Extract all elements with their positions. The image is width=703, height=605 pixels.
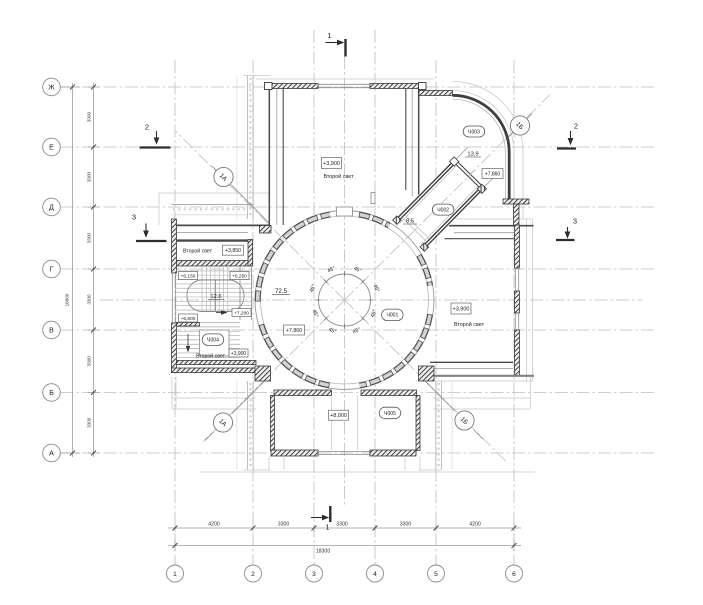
svg-text:+5,250: +5,250 — [232, 273, 247, 279]
svg-text:1: 1 — [327, 31, 331, 40]
svg-text:3300: 3300 — [87, 111, 92, 122]
svg-text:+3,850: +3,850 — [225, 248, 241, 254]
svg-text:Ч005: Ч005 — [384, 411, 396, 417]
svg-text:72.5: 72.5 — [275, 288, 288, 295]
svg-text:13.9: 13.9 — [467, 152, 478, 158]
svg-text:+6,600: +6,600 — [181, 316, 196, 322]
svg-text:Д: Д — [49, 205, 54, 212]
svg-text:Ч001: Ч001 — [386, 313, 398, 319]
svg-text:3300: 3300 — [400, 522, 412, 528]
svg-text:5: 5 — [434, 571, 438, 578]
svg-text:3: 3 — [132, 213, 136, 222]
svg-text:+3,900: +3,900 — [323, 161, 340, 167]
svg-text:Ж: Ж — [48, 85, 55, 92]
svg-text:Второй свет: Второй свет — [323, 173, 354, 180]
svg-text:4200: 4200 — [469, 522, 481, 528]
svg-text:4: 4 — [373, 571, 377, 578]
svg-text:3300: 3300 — [87, 417, 92, 428]
svg-text:3: 3 — [573, 217, 577, 226]
svg-text:3300: 3300 — [87, 171, 92, 182]
svg-text:3300: 3300 — [278, 522, 290, 528]
svg-text:3300: 3300 — [87, 294, 92, 305]
svg-text:+7,200: +7,200 — [234, 310, 249, 316]
svg-text:Второй свет: Второй свет — [454, 321, 485, 328]
svg-text:12.6: 12.6 — [210, 294, 221, 300]
svg-text:А: А — [49, 451, 54, 458]
svg-text:1: 1 — [173, 571, 177, 578]
svg-text:3300: 3300 — [87, 232, 92, 243]
svg-text:2: 2 — [574, 122, 578, 131]
svg-text:+8,000: +8,000 — [330, 413, 347, 419]
svg-text:+7,860: +7,860 — [485, 171, 501, 177]
svg-text:18300: 18300 — [316, 549, 331, 555]
svg-text:3300: 3300 — [336, 522, 348, 528]
svg-text:3: 3 — [312, 571, 316, 578]
svg-text:6: 6 — [512, 571, 516, 578]
svg-text:Второй свет: Второй свет — [196, 352, 226, 359]
svg-text:Ч004: Ч004 — [207, 337, 219, 343]
svg-text:2: 2 — [145, 123, 149, 132]
svg-text:Ч003: Ч003 — [468, 129, 480, 135]
svg-text:Второй свет: Второй свет — [183, 248, 213, 255]
svg-text:Е: Е — [49, 145, 54, 152]
svg-text:+7,860: +7,860 — [286, 328, 302, 334]
svg-text:Ч002: Ч002 — [437, 207, 449, 213]
svg-text:1: 1 — [325, 523, 329, 532]
svg-text:4200: 4200 — [208, 522, 220, 528]
svg-text:8.5: 8.5 — [406, 219, 414, 225]
svg-text:+3,900: +3,900 — [231, 351, 247, 357]
svg-text:Б: Б — [49, 390, 54, 397]
svg-text:Г: Г — [50, 267, 54, 274]
svg-text:+6,150: +6,150 — [181, 273, 196, 279]
svg-text:+3,900: +3,900 — [453, 306, 470, 312]
svg-text:В: В — [49, 328, 54, 335]
svg-text:3300: 3300 — [87, 356, 92, 367]
svg-text:16800: 16800 — [65, 293, 70, 306]
svg-text:2: 2 — [251, 571, 255, 578]
